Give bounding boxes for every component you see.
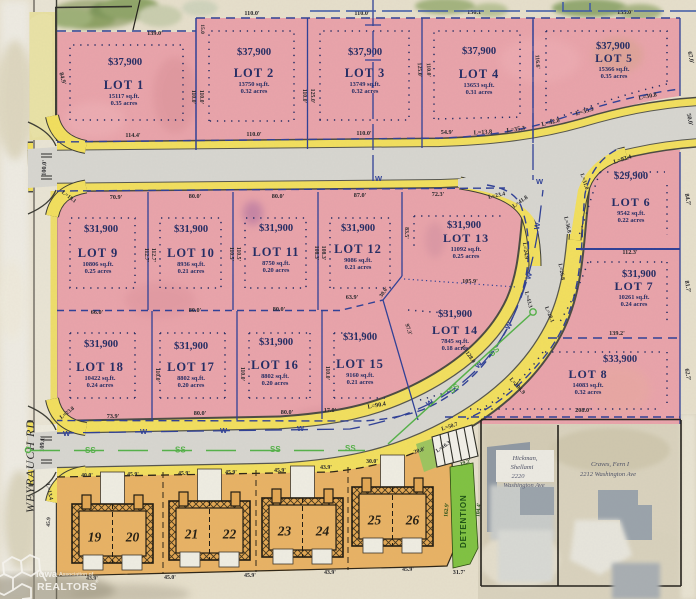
svg-text:REALTORS: REALTORS — [37, 581, 97, 593]
svg-text:Association of: Association of — [59, 572, 94, 578]
svg-text:Iowa: Iowa — [36, 569, 58, 580]
